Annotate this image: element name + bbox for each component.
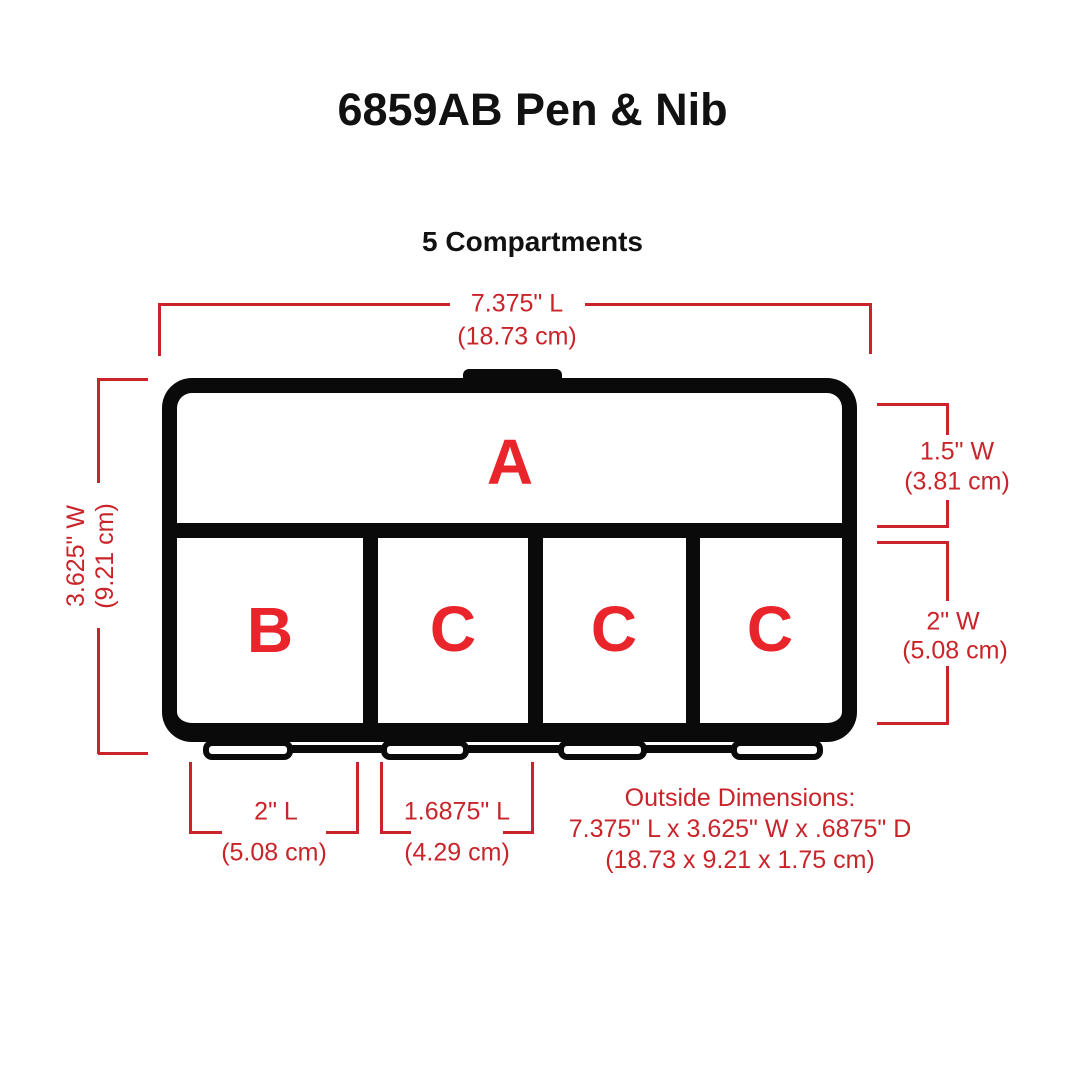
dim-line: [946, 500, 949, 528]
foot-tab: [381, 740, 469, 760]
dim-tick: [869, 303, 872, 354]
dim-line: [946, 541, 949, 601]
dim-b-length-label: 2" L: [254, 798, 298, 827]
dim-b-length-metric: (5.08 cm): [221, 839, 327, 868]
page-title: 6859AB Pen & Nib: [0, 84, 1065, 136]
dim-bc-width-label: 2" W: [926, 608, 979, 637]
compartment-b-label: B: [247, 593, 293, 667]
foot-tab: [203, 740, 293, 760]
outside-dimensions-metric: (18.73 x 9.21 x 1.75 cm): [569, 845, 912, 876]
outside-dimensions-block: Outside Dimensions: 7.375" L x 3.625" W …: [569, 783, 912, 876]
dim-tick: [380, 762, 383, 834]
dim-tick: [531, 762, 534, 834]
dim-width-label: 3.625" W: [62, 503, 91, 609]
compartment-c3-label: C: [747, 592, 793, 666]
divider-vertical-2: [528, 523, 543, 723]
foot-tab: [731, 740, 823, 760]
dim-line: [97, 628, 100, 754]
dim-tick: [158, 303, 161, 356]
diagram-canvas: 6859AB Pen & Nib 5 Compartments 7.375" L…: [0, 0, 1065, 1065]
compartment-a-label: A: [487, 425, 533, 499]
dim-line: [585, 303, 872, 306]
dim-line: [189, 831, 222, 834]
dim-line: [503, 831, 534, 834]
dim-tick: [356, 762, 359, 834]
divider-vertical-1: [363, 523, 378, 723]
divider-horizontal: [177, 523, 842, 538]
dim-line: [97, 378, 100, 483]
foot-tab: [558, 740, 647, 760]
compartment-count-label: 5 Compartments: [0, 226, 1065, 258]
dim-tick: [98, 752, 148, 755]
dim-tick: [189, 762, 192, 834]
dim-line: [326, 831, 359, 834]
dim-tick: [98, 378, 148, 381]
dim-width-metric: (9.21 cm): [91, 503, 120, 609]
dim-c-length-metric: (4.29 cm): [404, 839, 510, 868]
dim-a-width-label: 1.5" W: [920, 438, 994, 467]
dim-line: [946, 403, 949, 435]
outside-dimensions-heading: Outside Dimensions:: [569, 783, 912, 814]
dim-length-label: 7.375" L: [471, 290, 563, 319]
outside-dimensions-inches: 7.375" L x 3.625" W x .6875" D: [569, 814, 912, 845]
dim-line: [946, 666, 949, 725]
dim-a-width-metric: (3.81 cm): [904, 468, 1010, 497]
divider-vertical-3: [686, 523, 700, 723]
dim-length-metric: (18.73 cm): [457, 323, 576, 352]
dim-c-length-label: 1.6875" L: [404, 798, 510, 827]
dim-line: [380, 831, 411, 834]
dim-tick: [877, 525, 949, 528]
dim-bc-width-metric: (5.08 cm): [902, 637, 1008, 666]
foot-bar: [644, 745, 734, 753]
dim-tick: [877, 541, 949, 544]
foot-bar: [290, 745, 384, 753]
foot-bar: [466, 745, 561, 753]
dim-line: [158, 303, 450, 306]
dim-width-label-group: 3.625" W (9.21 cm): [62, 503, 120, 609]
compartment-c2-label: C: [591, 592, 637, 666]
compartment-c1-label: C: [430, 592, 476, 666]
dim-tick: [877, 403, 949, 406]
dim-tick: [877, 722, 949, 725]
